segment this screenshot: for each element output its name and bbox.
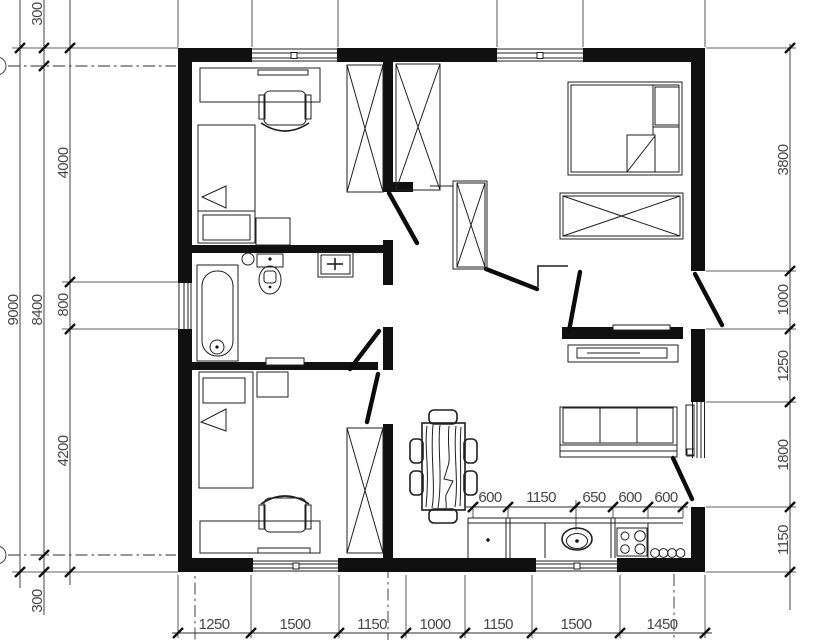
master-furniture — [568, 82, 682, 362]
dining-chair-right-1 — [464, 439, 477, 463]
bedroom1-furniture — [198, 68, 320, 245]
bathroom-fixtures — [197, 252, 353, 365]
dim-bottom-4: 1000 — [420, 616, 451, 633]
kitchen-stove — [617, 528, 647, 556]
dim-right-4: 1800 — [775, 439, 792, 470]
window-bathroom-left — [179, 283, 191, 329]
bed-bedroom2 — [199, 372, 253, 488]
dim-bottom-3: 1150 — [357, 616, 387, 633]
desk-bedroom1 — [200, 68, 320, 102]
dining-chair-right-2 — [464, 471, 477, 495]
wall-shelf-niche — [613, 325, 670, 330]
dining-table — [422, 423, 465, 510]
door-hall-living-leaf — [486, 269, 537, 289]
door-entry-leaf — [695, 274, 722, 325]
wall-stub-hall — [538, 266, 568, 287]
wardrobe-hall — [396, 64, 440, 190]
pillow-bedroom1 — [202, 186, 226, 208]
grid-axes — [0, 57, 674, 640]
washbasin — [318, 252, 353, 277]
wall-hall-bedroom1 — [383, 56, 393, 192]
tv-console — [568, 345, 678, 362]
kitchen — [468, 518, 685, 558]
radiator-bumps — [651, 549, 685, 558]
dining-chair-left-1 — [410, 439, 423, 463]
dim-right-5: 1150 — [775, 525, 792, 555]
kitchen-sink — [562, 528, 592, 550]
dining-chair-top — [429, 410, 457, 424]
wall-bathroom-right-lower — [383, 327, 393, 370]
monitor-bedroom1 — [258, 70, 308, 75]
dim-left-wall-bottom: 300 — [29, 589, 46, 612]
dim-left-wall-mid: 8400 — [29, 294, 46, 325]
dimension-ticks — [15, 43, 795, 638]
nightstand-bedroom2 — [257, 372, 288, 397]
dining-chair-left-2 — [410, 471, 423, 495]
dim-right-2: 1000 — [775, 284, 792, 315]
desk-bedroom2 — [200, 521, 320, 553]
wardrobe-bedroom2 — [347, 428, 383, 553]
pillow-bedroom2 — [201, 409, 226, 431]
dimension-lines — [20, 0, 790, 633]
dim-kitchen-4: 600 — [618, 489, 641, 506]
bath-mat — [266, 358, 304, 365]
cabinet-handle — [486, 538, 489, 541]
door-bedroom1-leaf — [389, 193, 417, 243]
dim-bottom-7: 1450 — [647, 616, 678, 633]
grid-bubble-top — [0, 57, 6, 75]
bathtub — [197, 265, 238, 361]
dim-bottom-6: 1500 — [561, 616, 592, 633]
chair-bedroom2 — [259, 496, 311, 532]
bed-bedroom1 — [198, 125, 255, 243]
chair-bedroom1 — [259, 91, 311, 131]
dim-right-3: 1250 — [775, 350, 792, 381]
wall-bathroom-top — [192, 245, 383, 253]
floor-plan-drawing: 9000 300 8400 300 4000 800 4200 3800 100… — [0, 0, 825, 640]
dim-kitchen-1: 600 — [478, 489, 501, 506]
wardrobe-bedroom1 — [347, 65, 383, 192]
dim-left-room-3: 4200 — [55, 435, 72, 466]
door-master-leaf — [569, 272, 580, 331]
dim-left-room-1: 4000 — [55, 147, 72, 178]
extension-lines — [12, 0, 796, 638]
dim-left-room-2: 800 — [55, 293, 72, 316]
interior-walls — [192, 56, 683, 560]
wood-grain-crack — [444, 426, 453, 508]
sofa — [560, 407, 677, 457]
wall-bedroom2-right — [383, 424, 393, 560]
toilet — [257, 254, 283, 294]
dim-bottom-1: 1250 — [199, 616, 230, 633]
bedroom2-furniture — [199, 372, 320, 553]
dim-kitchen-2: 1150 — [526, 489, 556, 506]
dimension-labels: 9000 300 8400 300 4000 800 4200 3800 100… — [5, 2, 792, 633]
window-master-top — [497, 49, 583, 61]
grid-bubble-bottom — [0, 546, 6, 564]
dim-bottom-5: 1150 — [483, 616, 513, 633]
wardrobe-master — [560, 193, 683, 239]
wall-bathroom-right-upper — [383, 240, 393, 285]
dim-left-overall: 9000 — [5, 294, 22, 325]
dim-kitchen-3: 650 — [582, 489, 605, 506]
window-bedroom2-bottom — [253, 561, 338, 571]
nightstand-bedroom1 — [256, 218, 290, 245]
window-bedroom1-top — [252, 49, 337, 61]
monitor-bedroom2 — [258, 548, 310, 553]
bed-master — [568, 82, 682, 175]
dim-kitchen-5: 600 — [654, 489, 677, 506]
dim-right-1: 3800 — [775, 144, 792, 175]
dim-bottom-2: 1500 — [280, 616, 311, 633]
dining-chair-bottom — [429, 509, 457, 523]
dining-set — [410, 410, 477, 523]
floor-drain — [242, 253, 254, 265]
door-bedroom2-leaf — [367, 374, 378, 422]
window-kitchen-bottom — [536, 561, 617, 571]
dim-left-wall-top: 300 — [29, 2, 46, 25]
pillow-master — [655, 87, 679, 125]
closet-hall-center — [453, 181, 487, 269]
living-furniture — [560, 405, 694, 457]
